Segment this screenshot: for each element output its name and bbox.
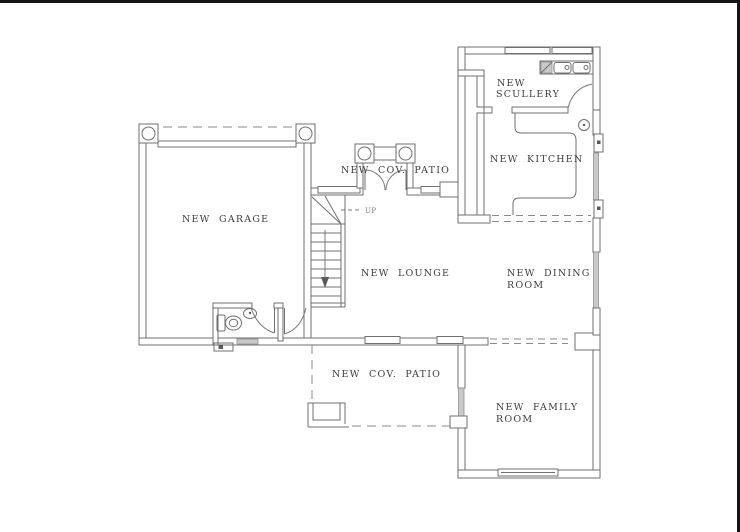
sink-bowl-icon [565,66,569,70]
scullery-kitchen-wall [484,107,492,113]
meter-box [219,345,224,350]
kitchen-label: NEW KITCHEN [490,154,583,165]
scullery-label-line2: SCULLERY [496,89,560,100]
south-wall [139,338,488,345]
winder-tread [325,196,341,224]
window-glazing [594,153,599,200]
garage-door [158,141,296,147]
block-east-wall [593,308,600,335]
patio-step [313,403,340,420]
door-swing-icon [251,308,275,333]
wall-pier [597,141,601,145]
patio-bottom-label: NEW COV. PATIO [332,369,441,380]
closet-wall [278,308,283,341]
garage-label: NEW GARAGE [182,214,269,225]
stairs-direction-arrow-icon [321,277,329,288]
floor-plan-page: UP [0,0,740,532]
basin-icon [249,312,251,314]
garage-east-wall [304,143,311,345]
floor-plan-canvas: UP [0,0,740,532]
winder-tread [312,197,341,224]
patio-top-label: NEW COV. PATIO [341,165,450,176]
hob-icon [583,124,585,126]
sink-bowl-icon [573,63,590,74]
scullery-label-line1: NEW [497,78,526,89]
sink-bowl-icon [554,63,571,74]
door-swing-icon [285,308,307,334]
dining-label-line1: NEW DINING [507,268,591,279]
toilet-icon [226,316,242,330]
garage [139,124,315,345]
window [437,337,463,344]
block-east-wall [593,110,600,135]
door-swing-icon [568,84,592,108]
garage-west-wall [139,143,146,345]
window-glazing [594,252,599,308]
wall-pier [575,333,600,350]
window [552,48,592,54]
family-label-line1: NEW FAMILY [496,402,578,413]
covered-patio-bottom [308,345,457,427]
inner-wall [458,70,484,76]
block-east-wall [593,350,600,477]
family-label-line2: ROOM [496,414,533,425]
stairs-up-label: UP [365,207,377,215]
door-post [274,303,283,308]
window [505,48,550,54]
wall-pier [450,416,467,428]
kitchen-south-wall [458,215,490,223]
inner-wall [477,113,484,223]
dining-label-line2: ROOM [507,280,544,291]
scullery-kitchen-wall [512,107,568,113]
window [365,337,400,344]
room-labels: NEW GARAGE NEW COV. PATIO NEW SCULLERY N… [182,78,591,425]
patio-step [308,403,345,427]
window-glazing [237,339,258,344]
window [318,187,360,194]
toilet-icon [229,319,237,327]
bathroom-north-wall [213,303,252,308]
wall-pier [440,182,458,197]
stairs: UP [311,195,377,307]
lounge-label: NEW LOUNGE [361,268,450,279]
window-glazing [459,388,465,416]
wall-pier [597,207,601,211]
block-east-wall [593,47,600,110]
family-west-wall [458,345,465,388]
sink-bowl-icon [584,66,588,70]
block-east-wall [593,218,600,252]
